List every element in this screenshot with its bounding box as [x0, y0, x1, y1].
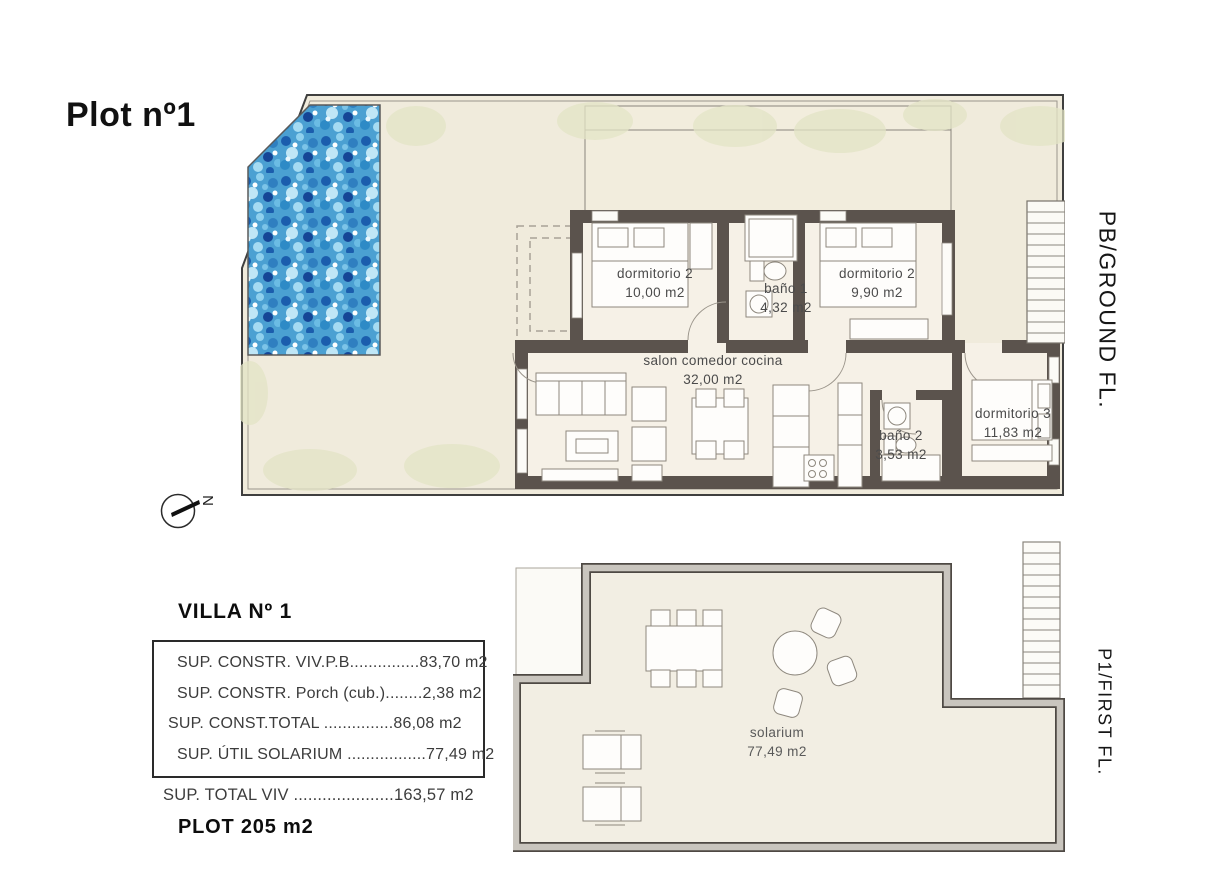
- room-area: 10,00 m2: [617, 284, 693, 303]
- compass-drawing: [148, 488, 228, 536]
- room-name: baño 1: [764, 281, 808, 296]
- room-area: 9,90 m2: [839, 284, 915, 303]
- room-name: dormitorio 2: [839, 266, 915, 281]
- room-label-dormitorio2b: dormitorio 2 9,90 m2: [839, 265, 915, 303]
- room-area: 32,00 m2: [643, 371, 782, 390]
- swimming-pool: [248, 105, 380, 355]
- room-label-dormitorio3: dormitorio 3 11,83 m2: [975, 405, 1051, 443]
- ground-floor-plan: dormitorio 2 10,00 m2 baño 1 4,32 m2 dor…: [240, 93, 1065, 497]
- summary-row-util-solarium: SUP. ÚTIL SOLARIUM .................77,4…: [168, 746, 483, 764]
- room-area: 77,49 m2: [747, 743, 807, 762]
- room-name: baño 2: [879, 428, 923, 443]
- room-area: 4,32 m2: [760, 299, 812, 318]
- room-name: solarium: [750, 725, 804, 740]
- room-name: salon comedor cocina: [643, 353, 782, 368]
- ground-floor-tag: PB/GROUND FL.: [1094, 211, 1121, 409]
- surface-summary-table: SUP. CONSTR. VIV.P.B...............83,70…: [152, 640, 485, 778]
- first-floor-drawing: [513, 540, 1073, 860]
- summary-total-row: SUP. TOTAL VIV .....................163,…: [163, 786, 474, 805]
- room-name: dormitorio 3: [975, 406, 1051, 421]
- room-area: 11,83 m2: [975, 424, 1051, 443]
- room-area: 3,53 m2: [875, 446, 927, 465]
- page-title: Plot nº1: [66, 96, 196, 135]
- stairs-first: [1023, 542, 1060, 698]
- room-name: dormitorio 2: [617, 266, 693, 281]
- summary-row-porch: SUP. CONSTR. Porch (cub.)........2,38 m2: [168, 685, 483, 703]
- first-floor-plan: solarium 77,49 m2: [513, 540, 1073, 860]
- room-label-bano2: baño 2 3,53 m2: [875, 427, 927, 465]
- floor-plan-sheet: Plot nº1: [0, 0, 1220, 870]
- first-floor-tag: P1/FIRST FL.: [1094, 648, 1115, 776]
- room-label-dormitorio2a: dormitorio 2 10,00 m2: [617, 265, 693, 303]
- stairs-ground: [1027, 201, 1065, 343]
- villa-title: VILLA Nº 1: [178, 600, 292, 624]
- compass-north-label: N: [199, 495, 216, 506]
- plot-size-label: PLOT 205 m2: [178, 816, 314, 839]
- north-arrow-icon: N: [148, 488, 228, 536]
- summary-row-constr-pb: SUP. CONSTR. VIV.P.B...............83,70…: [168, 654, 483, 672]
- roof-notch: [516, 568, 586, 678]
- room-label-solarium: solarium 77,49 m2: [747, 724, 807, 762]
- room-label-bano1: baño 1 4,32 m2: [760, 280, 812, 318]
- room-label-salon: salon comedor cocina 32,00 m2: [643, 352, 782, 390]
- summary-row-const-total: SUP. CONST.TOTAL ...............86,08 m2: [168, 715, 483, 733]
